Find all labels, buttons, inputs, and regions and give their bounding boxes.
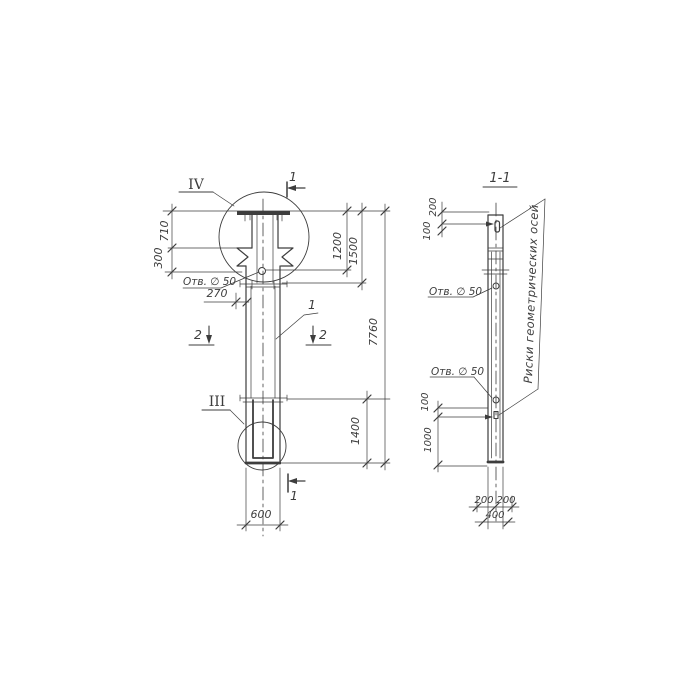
drawing-page: 710 300 270 Отв. ∅ 50 1200 1500 7760: [0, 0, 700, 700]
flange-plate: [237, 211, 290, 215]
front-view-marks: 1 1 2 2 1 IV III: [179, 169, 331, 503]
axes-note: Риски геометрических осей: [521, 204, 541, 384]
part-label-1: 1: [308, 297, 316, 312]
dim-100-top: 100: [422, 221, 433, 240]
section-view-dimensions: 200 100 100 1000 200 200 400 Отв. ∅ 50 О…: [420, 197, 545, 529]
section-mark-1-top: 1: [289, 169, 297, 184]
dim-300: 300: [152, 248, 165, 269]
dim-100-mid: 100: [420, 392, 431, 411]
dim-1200: 1200: [331, 232, 344, 260]
dim-400: 400: [485, 510, 504, 521]
detail-label-IV: IV: [188, 177, 205, 193]
dim-200-bottom-right: 200: [496, 495, 515, 506]
collar-left: [237, 248, 252, 266]
section-mark-2-left: 2: [194, 327, 202, 342]
front-hole: [259, 268, 266, 275]
dim-270: 270: [207, 287, 228, 300]
detail-label-III: III: [209, 394, 226, 410]
dim-1000: 1000: [423, 427, 434, 452]
dim-7760: 7760: [367, 318, 380, 346]
technical-drawing: 710 300 270 Отв. ∅ 50 1200 1500 7760: [0, 0, 700, 700]
collar-right: [278, 248, 293, 266]
section-mark-2-right: 2: [319, 327, 327, 342]
dim-710: 710: [158, 221, 171, 242]
dim-600: 600: [251, 508, 272, 521]
section-title: 1-1: [489, 171, 510, 186]
dim-200-top: 200: [428, 197, 439, 216]
section-mark-1-bottom: 1: [290, 488, 298, 503]
front-hole-note: Отв. ∅ 50: [183, 276, 236, 288]
front-view-dimensions: 710 300 270 Отв. ∅ 50 1200 1500 7760: [152, 203, 390, 531]
dim-1400: 1400: [349, 417, 362, 445]
dim-200-bottom-left: 200: [474, 495, 493, 506]
dim-1500: 1500: [347, 237, 360, 265]
section-hole-note-lower: Отв. ∅ 50: [431, 366, 484, 378]
